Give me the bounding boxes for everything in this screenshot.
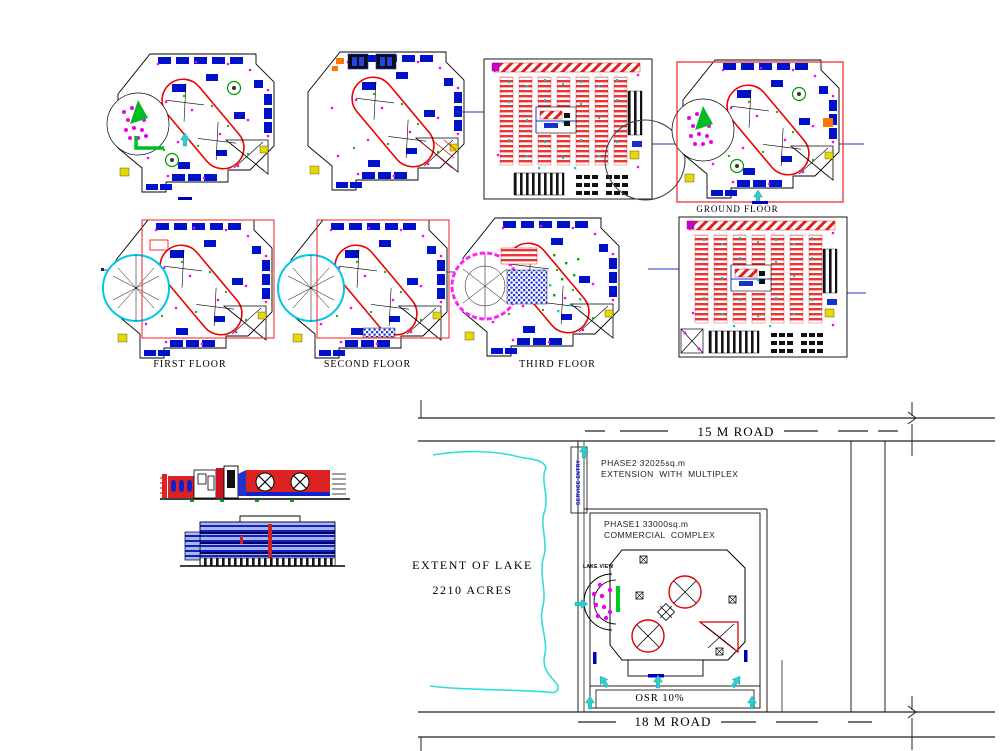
- road-top-label: 15 M ROAD: [688, 424, 784, 440]
- phase2-use-label: EXTENSION WITH MULTIPLEX: [601, 469, 738, 480]
- second-floor-plan: [278, 220, 449, 358]
- front-elevation: [160, 466, 350, 502]
- ground-floor-plan: [672, 60, 843, 202]
- side-elevation: [180, 516, 345, 566]
- mall-plan-b: [308, 52, 464, 190]
- cad-drawing-canvas: FIRST FLOOR SECOND FLOOR THIRD FLOOR GRO…: [0, 0, 1000, 751]
- lake-side-entrance-arrow-icon: [575, 600, 588, 609]
- first-floor-plan: [103, 220, 274, 358]
- lower-parking-plan: [679, 217, 847, 357]
- ground-floor-label: GROUND FLOOR: [690, 204, 785, 214]
- service-entry-label: SERVICE ENTRY: [576, 460, 582, 505]
- upper-parking-plan: [484, 59, 652, 199]
- road-entrance-arrow-icon: [748, 696, 757, 709]
- second-floor-label: SECOND FLOOR: [320, 359, 415, 370]
- mall-plan-a: [107, 54, 274, 192]
- entrance-arrow-icon: [729, 674, 744, 690]
- architectural-drawing: [0, 0, 1000, 751]
- lake-view-label: LAKE VIEW: [583, 564, 613, 570]
- phase2-area-label: PHASE2 32025sq.m: [601, 458, 685, 469]
- road-bottom-label: 18 M ROAD: [625, 714, 721, 730]
- osr-label: OSR 10%: [610, 693, 710, 704]
- entrance-marker: [178, 197, 192, 200]
- phase1-use-label: COMMERCIAL COMPLEX: [604, 530, 715, 541]
- lake-extent-label: EXTENT OF LAKE: [410, 558, 535, 573]
- lake-acres-label: 2210 ACRES: [410, 583, 535, 598]
- entrance-arrow-icon: [596, 674, 611, 690]
- third-floor-plan: [452, 218, 619, 356]
- road-entrance-arrow-icon: [586, 696, 595, 709]
- phase1-area-label: PHASE1 33000sq.m: [604, 519, 688, 530]
- first-floor-label: FIRST FLOOR: [145, 359, 235, 370]
- third-floor-label: THIRD FLOOR: [510, 359, 605, 370]
